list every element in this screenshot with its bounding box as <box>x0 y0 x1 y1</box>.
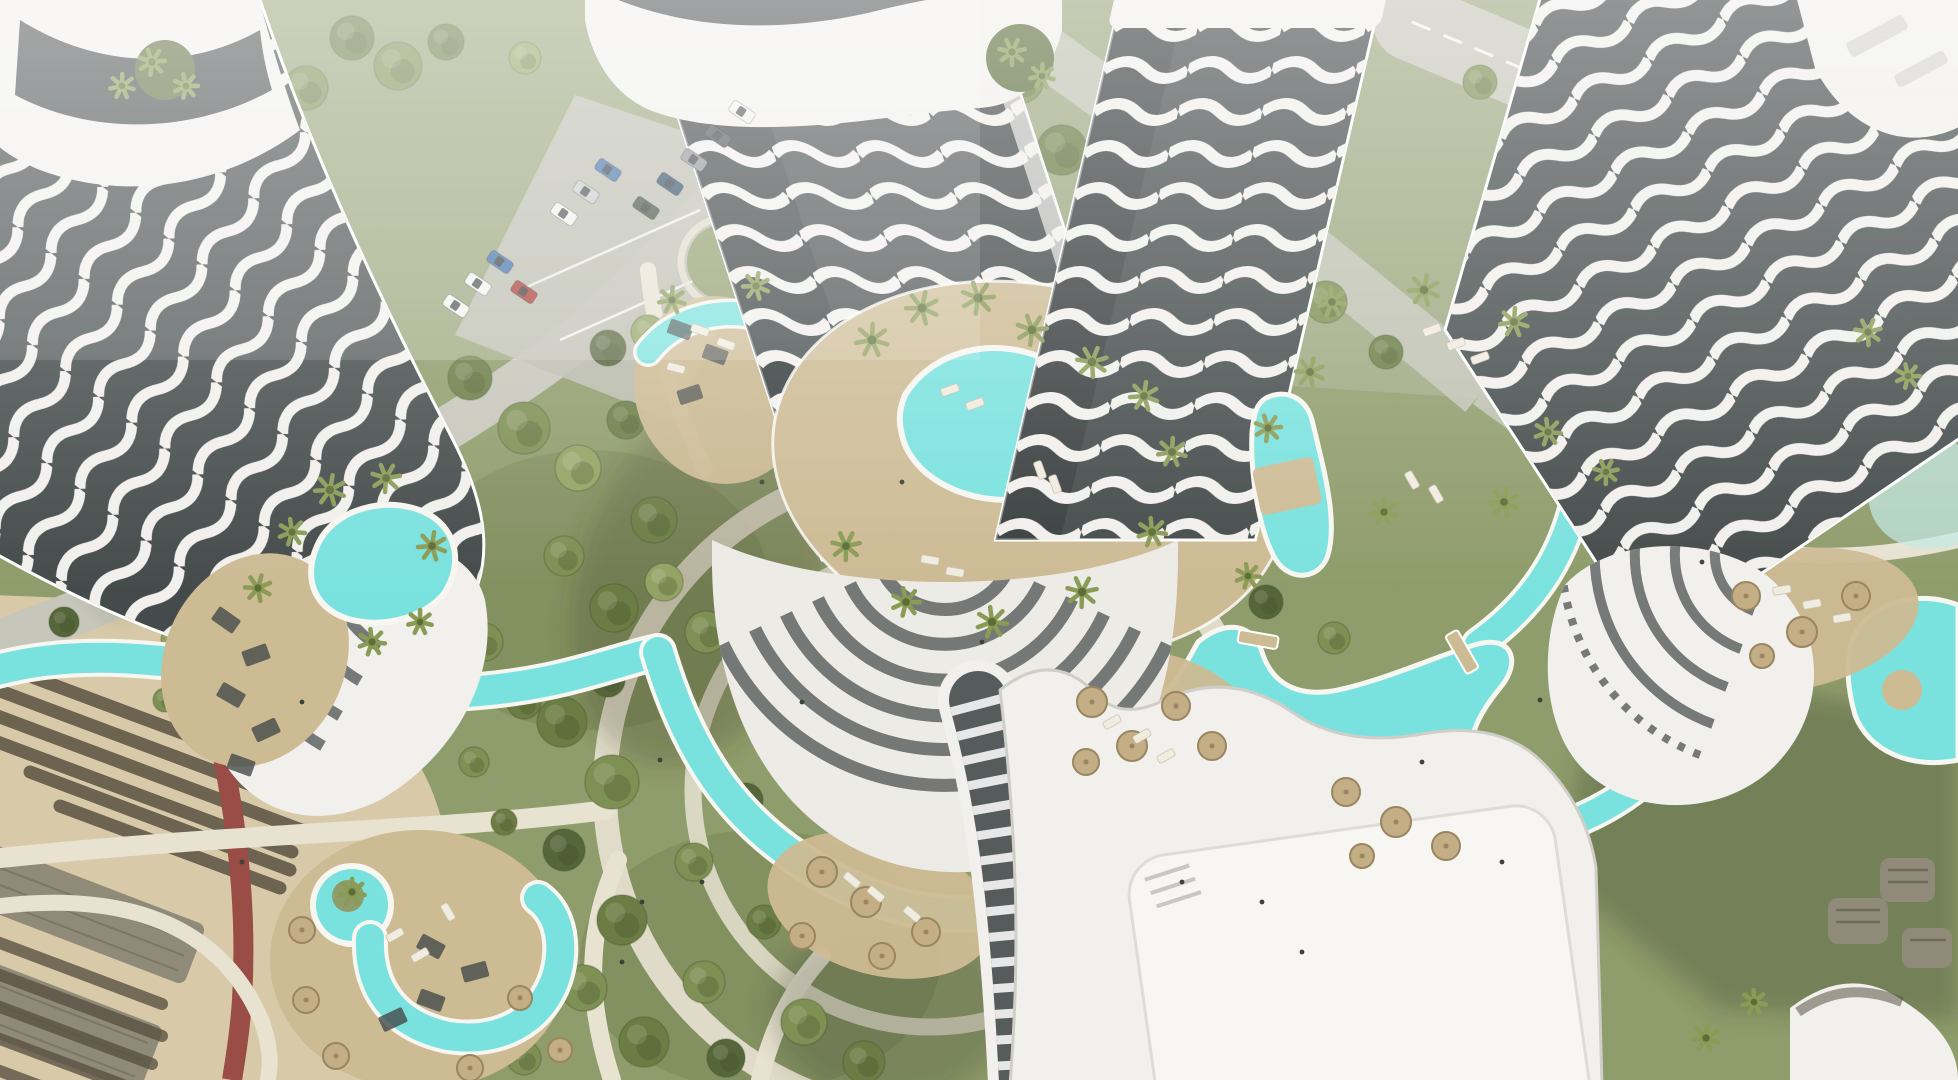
aerial-render <box>0 0 1958 1080</box>
haze-northwest <box>0 0 980 360</box>
scene-canvas <box>0 0 1958 1080</box>
